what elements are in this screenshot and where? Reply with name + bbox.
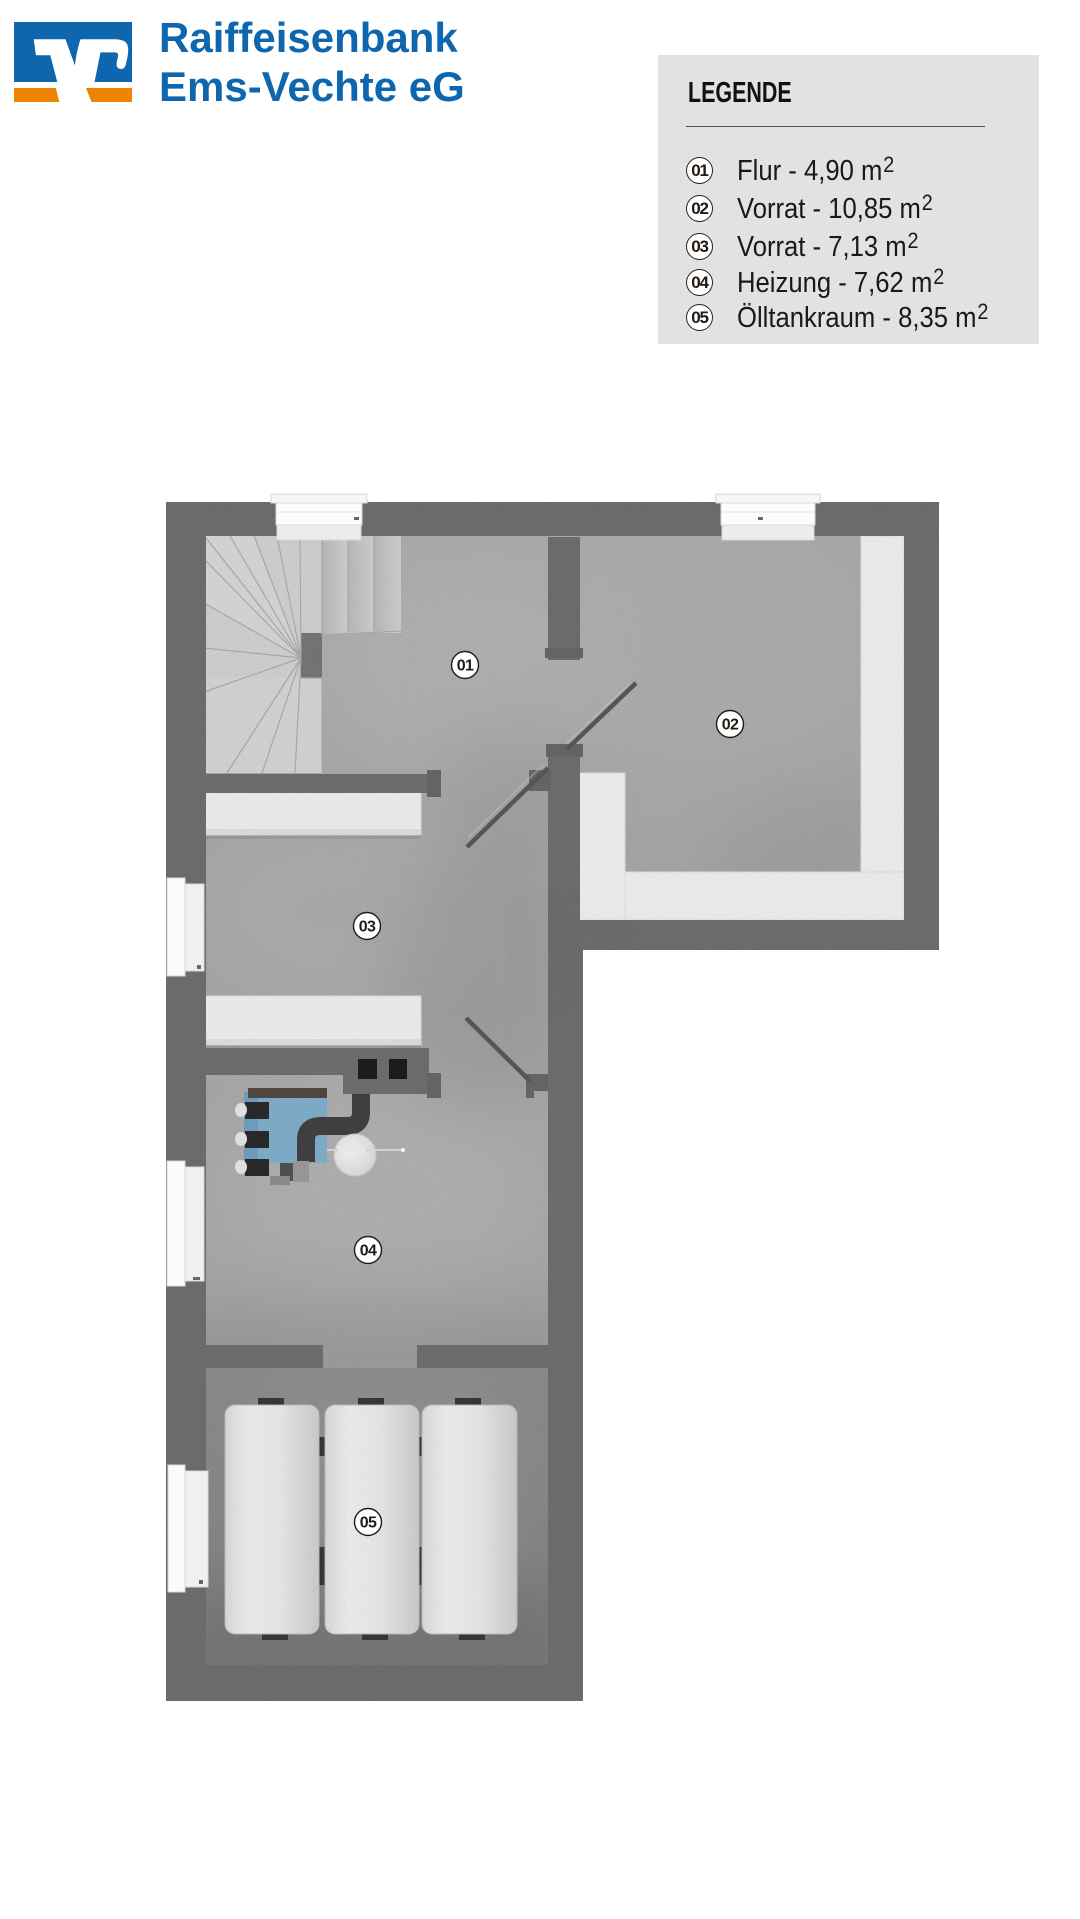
svg-text:01: 01 [457, 658, 474, 675]
svg-text:04: 04 [360, 1243, 377, 1260]
svg-text:02: 02 [722, 717, 739, 734]
svg-text:05: 05 [360, 1515, 377, 1532]
svg-text:03: 03 [359, 919, 376, 936]
